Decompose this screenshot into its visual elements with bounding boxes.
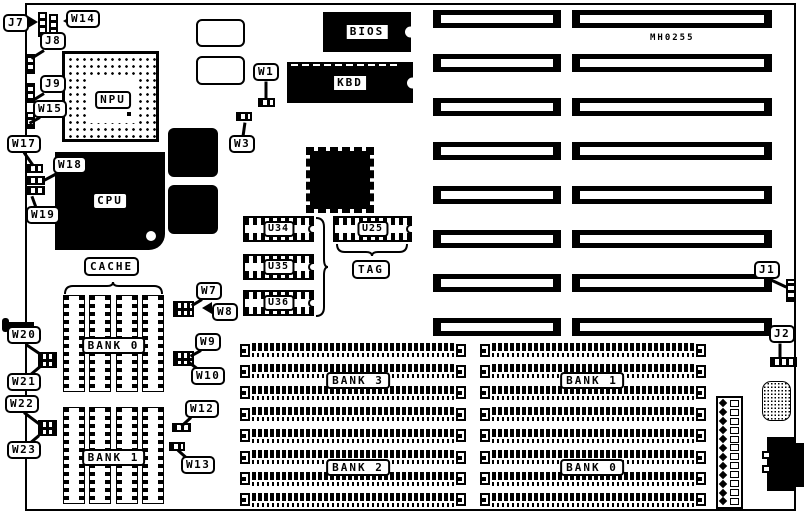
simm-latch bbox=[696, 365, 706, 378]
isa-slot bbox=[572, 54, 772, 72]
simm-latch bbox=[456, 493, 466, 506]
simm-latch bbox=[456, 365, 466, 378]
simm-latch bbox=[240, 451, 250, 464]
isa-slot bbox=[572, 186, 772, 204]
motherboard-diagram: NPU CPU BIOS KBD U34 U35 U36 bbox=[0, 0, 804, 520]
power-pad bbox=[730, 436, 739, 443]
callout-w18: W18 bbox=[53, 156, 87, 174]
callout-w20: W20 bbox=[7, 326, 41, 344]
power-pin-row bbox=[720, 427, 739, 434]
simm-latch bbox=[696, 451, 706, 464]
simm-latch bbox=[696, 386, 706, 399]
power-pin-row bbox=[720, 498, 739, 505]
isa-slot bbox=[572, 142, 772, 160]
simm-latch bbox=[696, 408, 706, 421]
tag-label: TAG bbox=[352, 260, 390, 279]
callout-w10: W10 bbox=[191, 367, 225, 385]
power-pin bbox=[719, 399, 727, 407]
power-pin-row bbox=[720, 480, 739, 487]
cache-label: CACHE bbox=[84, 257, 139, 276]
power-pad bbox=[730, 444, 739, 451]
simm-pin-strip bbox=[492, 429, 694, 443]
jumper-w22-w23 bbox=[38, 420, 57, 436]
u34-notch bbox=[308, 224, 314, 234]
simm-latch bbox=[240, 344, 250, 357]
jumper-w18 bbox=[26, 176, 45, 185]
din-footprint-pad bbox=[762, 381, 791, 421]
qfp-chip-upper bbox=[168, 128, 218, 177]
din-notch-2 bbox=[762, 465, 771, 473]
chipset-qfp bbox=[306, 147, 374, 213]
power-pad bbox=[730, 462, 739, 469]
callout-w19: W19 bbox=[26, 206, 60, 224]
simm-pin-strip bbox=[252, 343, 454, 357]
simm-socket-row bbox=[240, 429, 466, 443]
jumper-w13 bbox=[169, 442, 185, 451]
u35-label: U35 bbox=[263, 259, 294, 275]
simm-pin-strip bbox=[252, 407, 454, 421]
keyboard-din-connector-tab bbox=[795, 443, 804, 487]
callout-w12: W12 bbox=[185, 400, 219, 418]
power-pin-row bbox=[720, 462, 739, 469]
simm-latch bbox=[240, 386, 250, 399]
simm-latch bbox=[480, 344, 490, 357]
isa-slot bbox=[572, 318, 772, 336]
simm-pin-strip bbox=[252, 429, 454, 443]
power-pad bbox=[730, 427, 739, 434]
callout-w8: W8 bbox=[212, 303, 238, 321]
power-pin bbox=[719, 470, 727, 478]
isa-slot bbox=[433, 98, 561, 116]
power-pin bbox=[719, 408, 727, 416]
simm-pin-strip bbox=[252, 493, 454, 507]
bios-chip: BIOS bbox=[323, 12, 411, 52]
callout-w17: W17 bbox=[7, 135, 41, 153]
callout-w13: W13 bbox=[181, 456, 215, 474]
jumper-w19 bbox=[26, 186, 45, 195]
power-pin bbox=[719, 453, 727, 461]
jumper-w7-w8 bbox=[173, 301, 194, 317]
jumper-w1 bbox=[258, 98, 275, 107]
bank1-label: BANK 1 bbox=[560, 372, 624, 389]
board-part-number: MH0255 bbox=[650, 33, 695, 43]
u35-notch bbox=[308, 262, 314, 272]
bios-notch bbox=[405, 27, 411, 38]
simm-latch bbox=[480, 429, 490, 442]
bank3-label: BANK 3 bbox=[326, 372, 390, 389]
crystal-oscillator-1 bbox=[196, 19, 245, 47]
simm-pin-strip bbox=[492, 493, 694, 507]
bios-label: BIOS bbox=[347, 25, 388, 39]
callout-w15: W15 bbox=[33, 100, 67, 118]
simm-latch bbox=[456, 429, 466, 442]
jumper-j8 bbox=[26, 54, 35, 74]
u25-label: U25 bbox=[357, 221, 388, 237]
cache-bank1-label: BANK 1 bbox=[82, 449, 146, 466]
jumper-j9 bbox=[26, 83, 35, 103]
simm-socket-row bbox=[480, 343, 706, 357]
u34-label: U34 bbox=[263, 221, 294, 237]
bank0-label: BANK 0 bbox=[560, 459, 624, 476]
jumper-w9-w10 bbox=[173, 351, 194, 366]
u36-label: U36 bbox=[263, 295, 294, 311]
socket-u35: U35 bbox=[243, 254, 314, 280]
simm-latch bbox=[480, 365, 490, 378]
simm-latch bbox=[456, 451, 466, 464]
cpu-pin1-dot bbox=[146, 231, 156, 241]
power-pin-row bbox=[720, 400, 739, 407]
power-pin-row bbox=[720, 489, 739, 496]
cache-bank-1-chips: BANK 1 bbox=[63, 407, 164, 504]
power-pad bbox=[730, 480, 739, 487]
simm-latch bbox=[480, 472, 490, 485]
socket-u36: U36 bbox=[243, 290, 314, 316]
isa-slot bbox=[433, 186, 561, 204]
keyboard-din-connector bbox=[767, 437, 795, 491]
power-pin bbox=[719, 417, 727, 425]
isa-slot bbox=[433, 142, 561, 160]
simm-latch bbox=[456, 344, 466, 357]
npu-pin1-dot bbox=[127, 112, 131, 116]
isa-slot bbox=[572, 98, 772, 116]
simm-latch bbox=[696, 344, 706, 357]
kbd-pin-row bbox=[291, 64, 401, 66]
power-pin-row bbox=[720, 436, 739, 443]
isa-slot bbox=[433, 54, 561, 72]
cpu-label: CPU bbox=[92, 192, 128, 210]
callout-j1: J1 bbox=[754, 261, 780, 279]
power-pin bbox=[719, 426, 727, 434]
power-pin bbox=[719, 435, 727, 443]
u36-notch bbox=[308, 298, 314, 308]
kbd-chip: KBD bbox=[287, 62, 413, 103]
isa-slot bbox=[433, 318, 561, 336]
callout-w1: W1 bbox=[253, 63, 279, 81]
kbd-label: KBD bbox=[334, 76, 366, 90]
simm-socket-row bbox=[240, 343, 466, 357]
isa-slot bbox=[433, 10, 561, 28]
simm-latch bbox=[240, 429, 250, 442]
power-pin-row bbox=[720, 444, 739, 451]
jumper-j1 bbox=[786, 279, 796, 302]
kbd-notch bbox=[407, 77, 413, 88]
simm-socket-row bbox=[480, 407, 706, 421]
simm-module-right bbox=[478, 340, 708, 510]
callout-w21: W21 bbox=[7, 373, 41, 391]
npu-socket-center: NPU bbox=[90, 77, 136, 123]
simm-latch bbox=[696, 493, 706, 506]
power-pad bbox=[730, 409, 739, 416]
simm-latch bbox=[696, 472, 706, 485]
qfp-chip-lower bbox=[168, 185, 218, 234]
power-pad bbox=[730, 418, 739, 425]
jumper-w20-w21 bbox=[38, 352, 57, 368]
callout-w14: W14 bbox=[66, 10, 100, 28]
npu-label: NPU bbox=[95, 91, 131, 109]
power-pad bbox=[730, 471, 739, 478]
callout-j7: J7 bbox=[3, 14, 29, 32]
power-pad bbox=[730, 400, 739, 407]
brace-u34-u36 bbox=[315, 217, 329, 317]
callout-w3: W3 bbox=[229, 135, 255, 153]
callout-j9: J9 bbox=[40, 75, 66, 93]
simm-socket-row bbox=[480, 493, 706, 507]
din-notch-1 bbox=[762, 451, 771, 459]
power-pad bbox=[730, 489, 739, 496]
power-pin-row bbox=[720, 471, 739, 478]
simm-latch bbox=[480, 408, 490, 421]
crystal-oscillator-2 bbox=[196, 56, 245, 85]
simm-latch bbox=[456, 408, 466, 421]
power-pin bbox=[719, 488, 727, 496]
bank2-label: BANK 2 bbox=[326, 459, 390, 476]
simm-module-left bbox=[238, 340, 468, 510]
simm-latch bbox=[456, 472, 466, 485]
simm-latch bbox=[480, 493, 490, 506]
power-pin-row bbox=[720, 418, 739, 425]
power-pin bbox=[719, 444, 727, 452]
socket-u34: U34 bbox=[243, 216, 314, 242]
u25-notch bbox=[406, 224, 412, 234]
callout-j2: J2 bbox=[769, 325, 795, 343]
isa-slot bbox=[433, 274, 561, 292]
simm-pin-strip bbox=[492, 407, 694, 421]
power-connector bbox=[716, 396, 743, 509]
isa-slot bbox=[572, 230, 772, 248]
power-pin-row bbox=[720, 453, 739, 460]
jumper-w12 bbox=[172, 423, 191, 432]
isa-slot bbox=[433, 230, 561, 248]
isa-slot bbox=[572, 10, 772, 28]
callout-j8: J8 bbox=[40, 32, 66, 50]
power-pad bbox=[730, 453, 739, 460]
simm-socket-row bbox=[240, 493, 466, 507]
simm-latch bbox=[480, 386, 490, 399]
isa-slot bbox=[572, 274, 772, 292]
cache-bank-0-chips: BANK 0 bbox=[63, 295, 164, 392]
power-pad bbox=[730, 498, 739, 505]
brace-u25-tag bbox=[336, 244, 408, 257]
simm-pin-strip bbox=[492, 343, 694, 357]
callout-w22: W22 bbox=[5, 395, 39, 413]
power-pin-row bbox=[720, 409, 739, 416]
callout-w7: W7 bbox=[196, 282, 222, 300]
jumper-w17 bbox=[26, 164, 43, 173]
npu-socket: NPU bbox=[62, 51, 159, 142]
callout-w9: W9 bbox=[195, 333, 221, 351]
simm-latch bbox=[696, 429, 706, 442]
brace-cache bbox=[63, 281, 164, 294]
callout-w23: W23 bbox=[7, 441, 41, 459]
power-pin bbox=[719, 497, 727, 505]
simm-socket-row bbox=[480, 429, 706, 443]
power-pin bbox=[719, 462, 727, 470]
simm-latch bbox=[480, 451, 490, 464]
jumper-j2 bbox=[770, 357, 797, 367]
socket-u25: U25 bbox=[333, 216, 412, 242]
power-pin bbox=[719, 479, 727, 487]
simm-socket-row bbox=[240, 407, 466, 421]
simm-latch bbox=[240, 493, 250, 506]
simm-latch bbox=[240, 408, 250, 421]
simm-latch bbox=[240, 472, 250, 485]
simm-latch bbox=[456, 386, 466, 399]
simm-latch bbox=[240, 365, 250, 378]
jumper-w3 bbox=[236, 112, 252, 121]
cache-bank0-label: BANK 0 bbox=[82, 337, 146, 354]
